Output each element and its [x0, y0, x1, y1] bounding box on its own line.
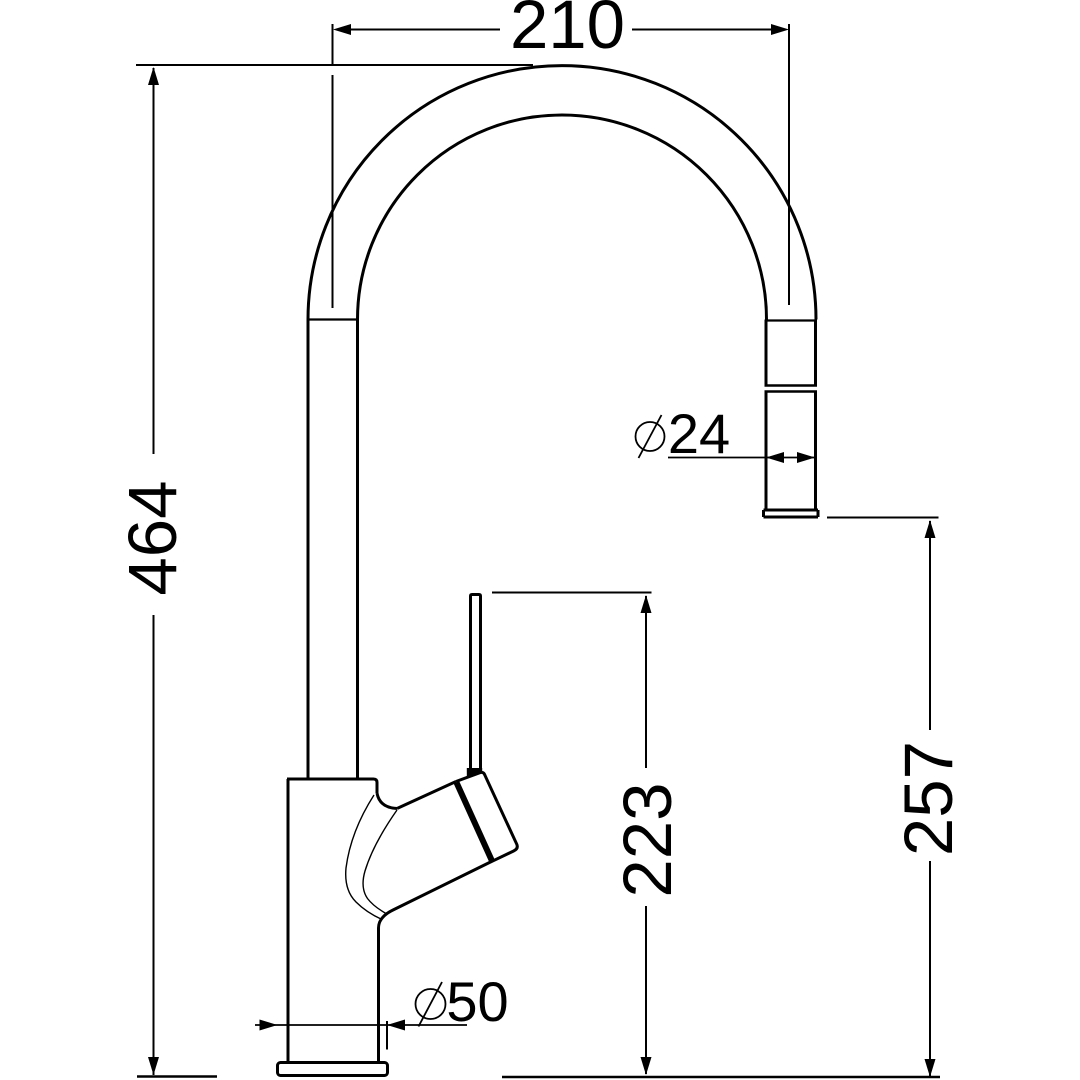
svg-text:50: 50 — [446, 970, 508, 1033]
svg-text:464: 464 — [114, 480, 191, 595]
svg-text:24: 24 — [668, 402, 730, 465]
svg-text:210: 210 — [510, 0, 625, 63]
svg-text:257: 257 — [890, 741, 967, 856]
svg-text:223: 223 — [609, 782, 686, 897]
